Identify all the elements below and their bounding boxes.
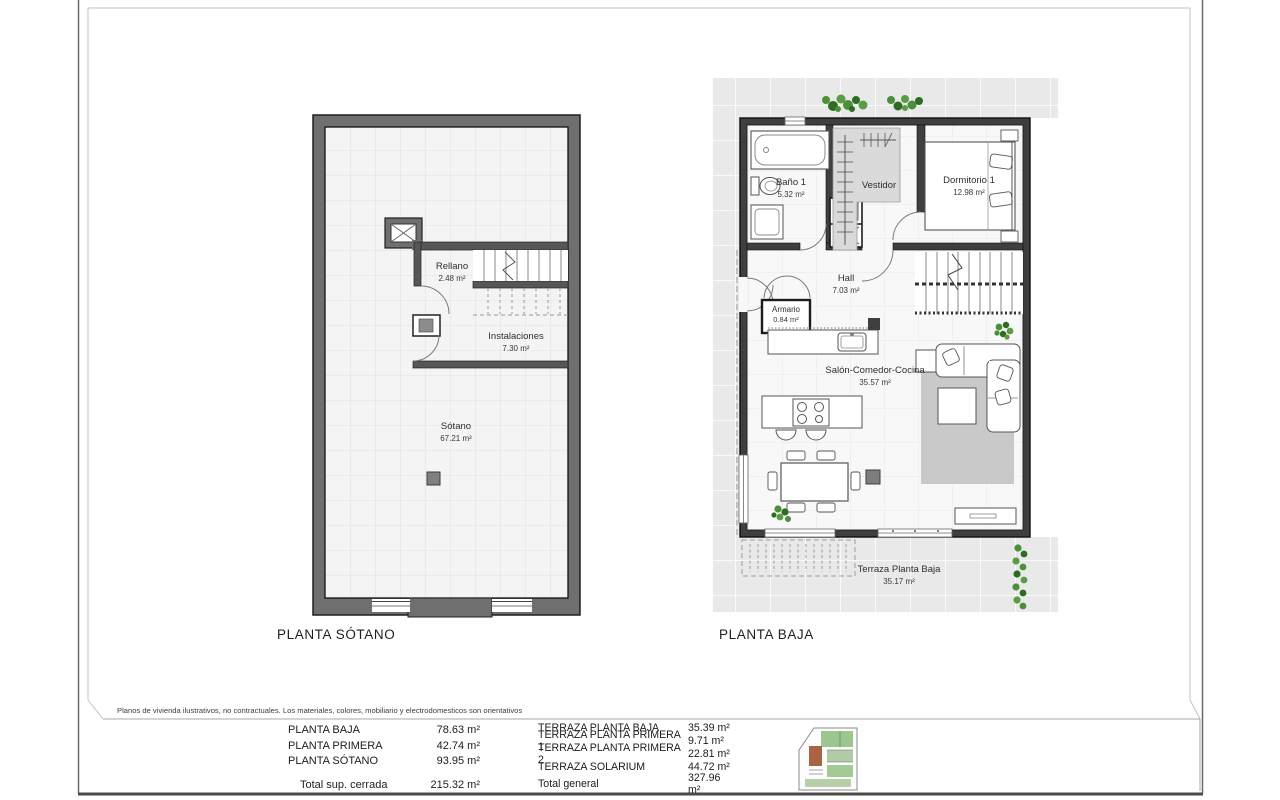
room-label-rellano: Rellano 2.48 m² [436, 260, 468, 284]
hob-icon [793, 399, 829, 426]
room-label-salon: Salón-Comedor-Cocina 35.57 m² [825, 364, 924, 388]
table-total-row: Total sup. cerrada215.32 m² [288, 777, 480, 793]
table-total-row: Total general327.96 m² [538, 778, 734, 791]
bathtub-icon [751, 131, 829, 169]
coffee-table-icon [938, 388, 976, 424]
table-row: PLANTA SÓTANO93.95 m² [288, 754, 480, 770]
interior-wall [413, 361, 568, 368]
room-label-armario: Armario 0.84 m² [772, 304, 800, 326]
terrace-tiles [713, 78, 1058, 118]
stairs [473, 250, 568, 281]
floor-plan-drawing [0, 0, 1280, 800]
interior-wall [420, 242, 568, 250]
column [868, 318, 880, 330]
window [739, 455, 748, 523]
nightstand-icon [1001, 231, 1018, 242]
closet-icon [413, 315, 440, 336]
room-label-instalaciones: Instalaciones 7.30 m² [488, 330, 543, 354]
closed-areas-table: PLANTA BAJA78.63 m² PLANTA PRIMERA42.74 … [288, 722, 480, 793]
interior-wall [747, 243, 800, 250]
plan-sotano-drawing [313, 115, 580, 617]
room-label-bano1: Baño 1 5.32 m² [776, 176, 806, 200]
plan-title-sotano: PLANTA SÓTANO [277, 627, 395, 642]
room-label-dormitorio1: Dormitorio 1 12.98 m² [943, 174, 995, 198]
interior-wall [917, 125, 925, 212]
window [785, 117, 805, 125]
plan-sheet: { "disclaimer": "Planos de vivienda ilus… [0, 0, 1280, 800]
window [765, 529, 835, 537]
plan-baja-drawing [713, 78, 1058, 612]
plan-title-baja: PLANTA BAJA [719, 627, 814, 642]
site-plan-thumbnail [797, 724, 860, 794]
terrace-areas-table: TERRAZA PLANTA BAJA35.39 m² TERRAZA PLAN… [538, 722, 734, 790]
entrance-opening [739, 277, 748, 312]
stairs [915, 252, 1023, 314]
basement-window [492, 599, 532, 612]
tv-unit-icon [955, 508, 1016, 524]
interior-wall [473, 281, 568, 288]
sliding-door [878, 529, 952, 537]
column [427, 472, 440, 485]
room-label-vestidor: Vestidor [862, 179, 896, 192]
dining-table-icon [781, 463, 848, 501]
nightstand-icon [1001, 130, 1018, 141]
table-row: TERRAZA PLANTA PRIMERA 222.81 m² [538, 748, 734, 761]
room-label-terraza: Terraza Planta Baja 35.17 m² [858, 563, 941, 587]
basement-window [372, 599, 410, 612]
sheet-frame [78, 0, 1203, 796]
disclaimer-text: Planos de vivienda ilustrativos, no cont… [117, 706, 522, 715]
sink-icon [751, 205, 783, 239]
interior-wall [414, 242, 421, 286]
table-row: PLANTA BAJA78.63 m² [288, 722, 480, 738]
interior-wall [893, 243, 1023, 250]
room-label-hall: Hall 7.03 m² [832, 272, 859, 296]
column [866, 470, 880, 484]
room-label-sotano: Sótano 67.21 m² [440, 420, 472, 444]
table-row: PLANTA PRIMERA42.74 m² [288, 738, 480, 754]
